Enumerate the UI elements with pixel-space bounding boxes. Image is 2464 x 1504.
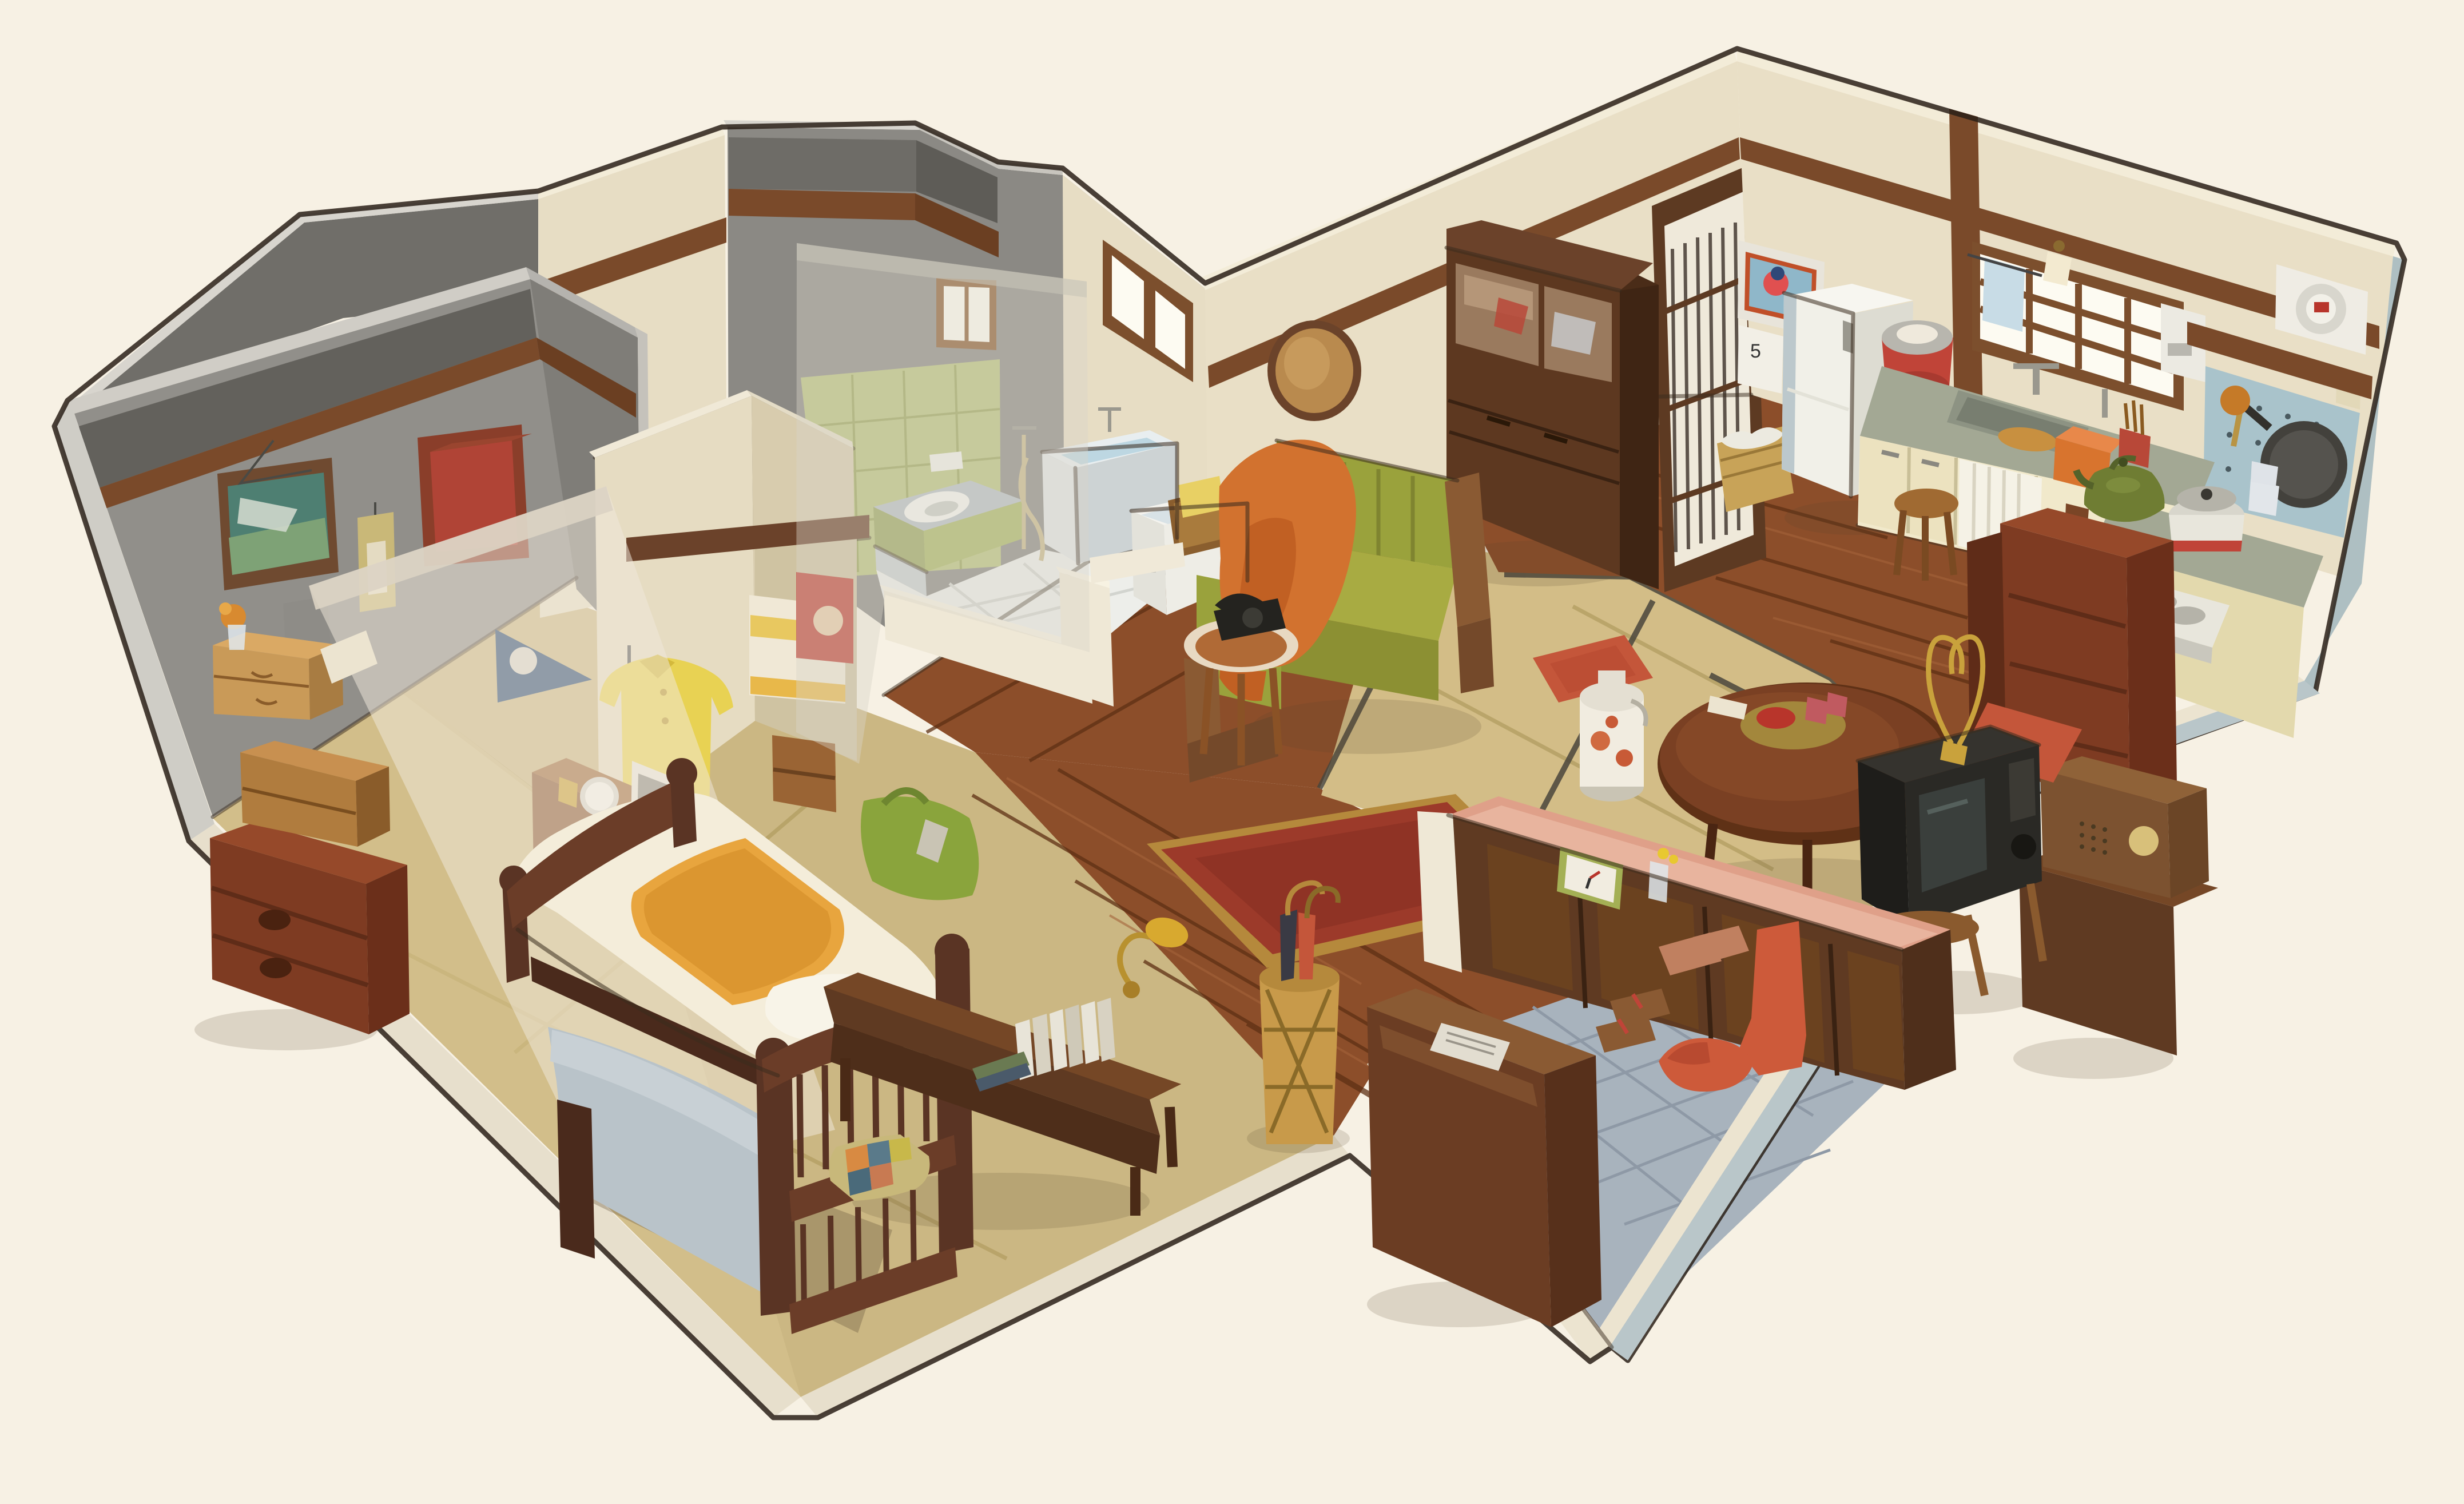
svg-text:5: 5 [1750,340,1761,362]
